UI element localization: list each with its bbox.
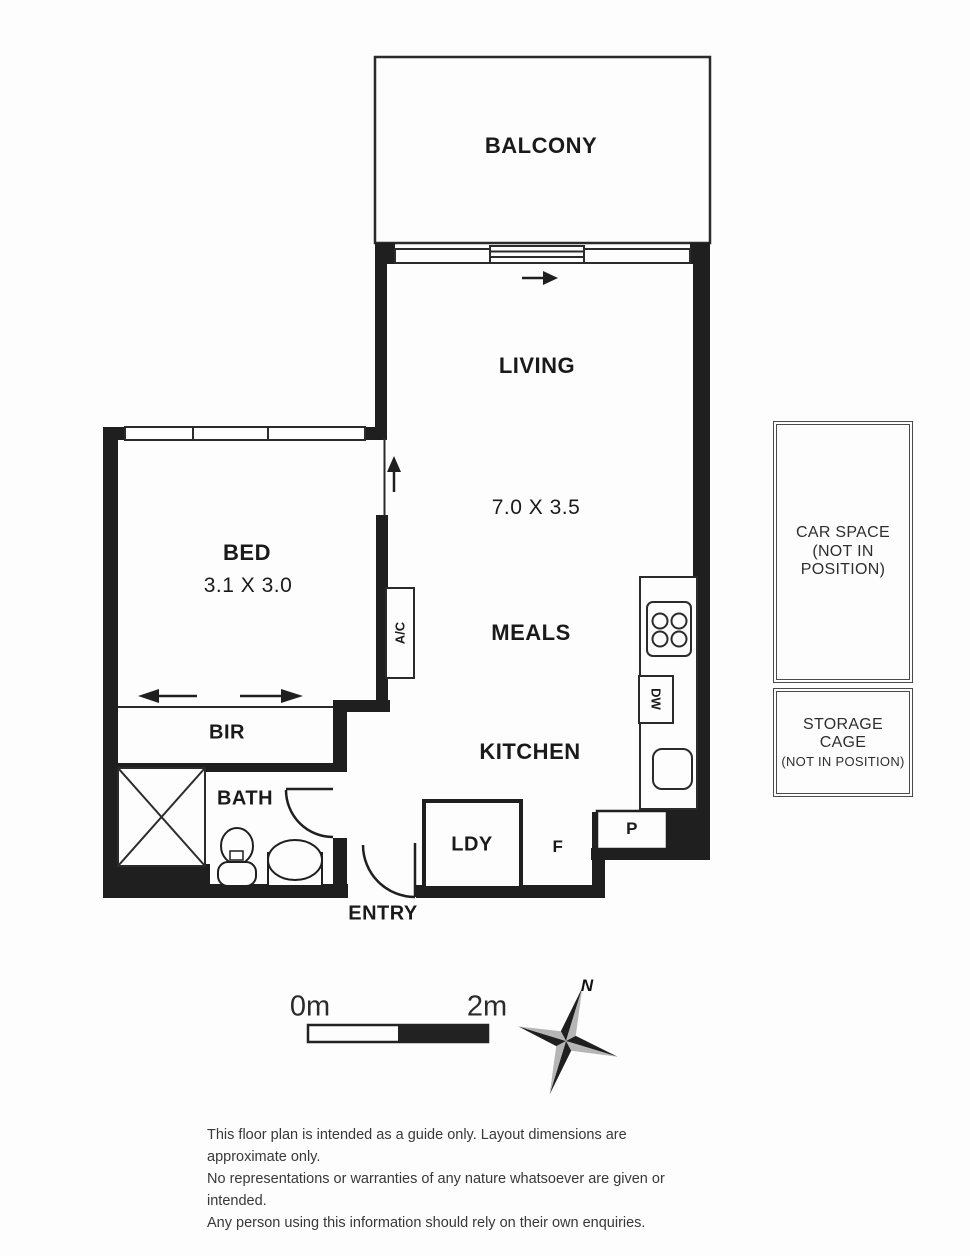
- scale-bar: [308, 1025, 488, 1042]
- toilet: [218, 828, 256, 886]
- storage-cage-line1: STORAGE: [803, 716, 883, 735]
- entry-label: ENTRY: [348, 903, 418, 926]
- bir-label: BIR: [209, 722, 245, 745]
- entry-door: [363, 843, 415, 897]
- bath-door: [286, 789, 333, 837]
- living-dimensions: 7.0 X 3.5: [492, 496, 581, 520]
- wall-under-shower: [110, 864, 210, 888]
- cooktop-burner: [672, 632, 687, 647]
- disclaimer-line2: No representations or warranties of any …: [207, 1168, 687, 1212]
- living-label: LIVING: [499, 353, 575, 379]
- balcony-slide-arrow: [522, 271, 558, 285]
- bir-slide-arrow-right: [240, 689, 303, 703]
- disclaimer-text: This floor plan is intended as a guide o…: [207, 1124, 687, 1234]
- pantry-label: P: [626, 819, 638, 839]
- bed-door-arrow: [387, 456, 401, 492]
- cooktop-burner: [653, 632, 668, 647]
- cooktop-burner: [653, 614, 668, 629]
- living-window: [395, 246, 690, 263]
- car-space-line2: (NOT IN: [812, 543, 873, 562]
- wall-living-left: [375, 248, 387, 437]
- bed-label: BED: [223, 540, 271, 566]
- car-space-box: CAR SPACE (NOT IN POSITION): [773, 421, 913, 683]
- meals-label: MEALS: [491, 620, 571, 646]
- aircon-label: A/C: [393, 622, 408, 644]
- floor-plan-canvas: BALCONY LIVING 7.0 X 3.5 BED 3.1 X 3.0 M…: [0, 0, 970, 1256]
- balcony-label: BALCONY: [485, 133, 597, 159]
- car-space-line1: CAR SPACE: [796, 524, 890, 543]
- disclaimer-line3: Any person using this information should…: [207, 1212, 687, 1234]
- wall-bottom-right-corner: [664, 810, 710, 860]
- storage-cage-box: STORAGE CAGE (NOT IN POSITION): [773, 688, 913, 797]
- scale-end-label: 2m: [467, 991, 507, 1024]
- compass-north-label: N: [581, 976, 593, 996]
- car-space-line3: POSITION): [801, 561, 885, 580]
- dishwasher-label: DW: [649, 688, 664, 710]
- laundry-label: LDY: [451, 834, 493, 857]
- cooktop-burner: [672, 614, 687, 629]
- bir-slide-arrow-left: [138, 689, 197, 703]
- disclaimer-line1: This floor plan is intended as a guide o…: [207, 1124, 687, 1168]
- kitchen-label: KITCHEN: [479, 739, 580, 765]
- cooktop: [647, 602, 691, 656]
- wall-left-outer: [103, 427, 118, 898]
- shower: [118, 768, 205, 866]
- bath-label: BATH: [217, 788, 273, 811]
- wall-bir-right: [333, 700, 347, 763]
- storage-cage-line2: CAGE: [820, 734, 867, 753]
- fridge-label: F: [553, 837, 564, 857]
- basin: [268, 840, 322, 886]
- wall-bed-window-left-end: [103, 427, 125, 440]
- scale-start-label: 0m: [290, 991, 330, 1024]
- compass-rose: [502, 973, 634, 1111]
- bed-window: [125, 427, 365, 440]
- bed-dimensions: 3.1 X 3.0: [204, 574, 293, 598]
- storage-cage-line3: (NOT IN POSITION): [781, 753, 904, 770]
- sink: [653, 749, 692, 789]
